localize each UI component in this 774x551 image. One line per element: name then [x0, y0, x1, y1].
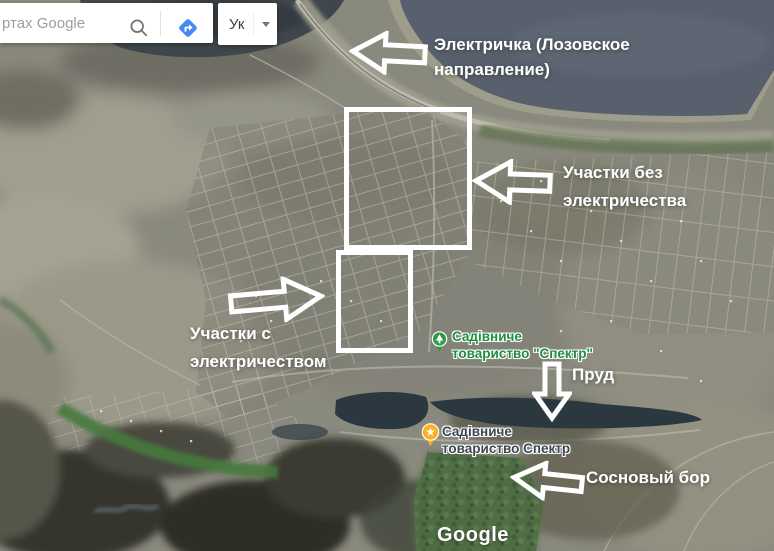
annotation-with-electricity-line2: электричеством — [190, 348, 327, 376]
annotation-no-electricity-label: Участки без электричества — [563, 159, 686, 215]
search-divider — [160, 11, 161, 36]
nature-poi-label[interactable]: Садівниче товариство "Спектр" — [452, 329, 593, 362]
outline-rect-plots-without-electricity — [344, 107, 472, 250]
arrow-left-no-electricity-icon — [471, 158, 555, 207]
tree-pin-icon[interactable] — [431, 331, 448, 353]
arrow-down-pond-icon — [532, 360, 572, 422]
search-input[interactable] — [0, 5, 122, 41]
annotation-no-electricity-line2: электричества — [563, 187, 686, 215]
annotation-no-electricity-line1: Участки без — [563, 159, 686, 187]
annotation-pond-label: Пруд — [572, 362, 614, 388]
profile-chip-divider — [253, 13, 254, 35]
star-pin-icon[interactable] — [421, 423, 440, 447]
directions-icon[interactable] — [176, 16, 200, 40]
profile-chip-label: Ук — [218, 16, 253, 33]
arrow-left-train-icon — [348, 29, 430, 77]
annotation-with-electricity-line1: Участки с — [190, 320, 327, 348]
google-logo: Google — [437, 524, 509, 547]
search-box[interactable] — [0, 3, 213, 43]
annotation-train-label: Электричка (Лозовское направление) — [434, 32, 630, 82]
annotation-pine-forest-label: Сосновый бор — [586, 465, 710, 491]
nature-poi-line1: Садівниче — [452, 329, 593, 346]
saved-poi-line2: товариство Спектр — [442, 441, 570, 458]
outline-rect-plots-with-electricity — [336, 250, 413, 353]
annotation-with-electricity-label: Участки с электричеством — [190, 320, 327, 376]
annotation-train-line1: Электричка (Лозовское — [434, 32, 630, 57]
annotation-train-line2: направление) — [434, 57, 630, 82]
chevron-down-icon[interactable] — [262, 22, 270, 27]
arrow-left-pine-forest-icon — [508, 457, 588, 505]
saved-poi-label[interactable]: Садівниче товариство Спектр — [442, 424, 570, 457]
google-maps-app: Электричка (Лозовское направление) Участ… — [0, 0, 774, 551]
saved-poi-line1: Садівниче — [442, 424, 570, 441]
search-icon[interactable] — [129, 18, 149, 38]
profile-chip-button[interactable]: Ук — [218, 3, 277, 45]
